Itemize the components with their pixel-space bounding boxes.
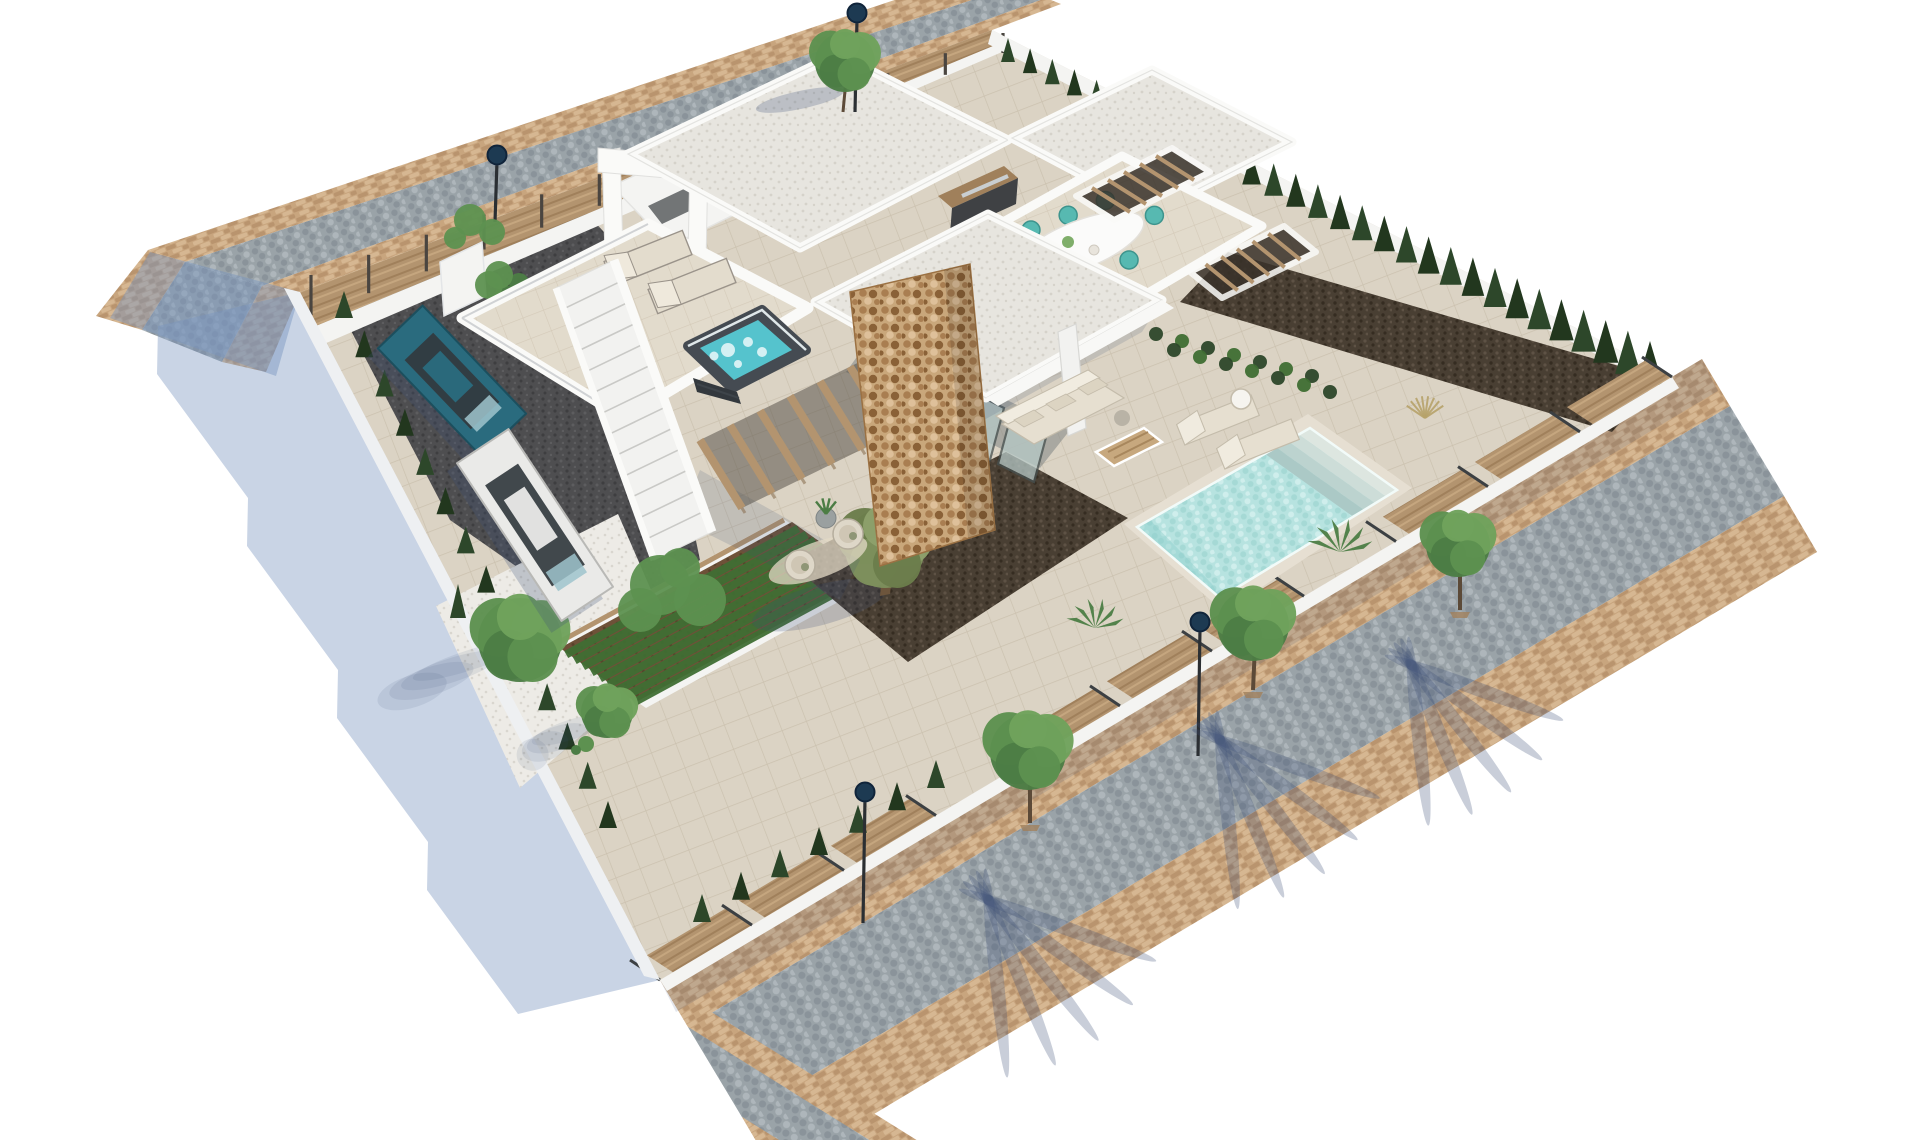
villa-aerial-render: Aerial 3D architectural rendering of a m… [0,0,1920,1140]
render-stage: Aerial 3D architectural rendering of a m… [0,0,1920,1140]
